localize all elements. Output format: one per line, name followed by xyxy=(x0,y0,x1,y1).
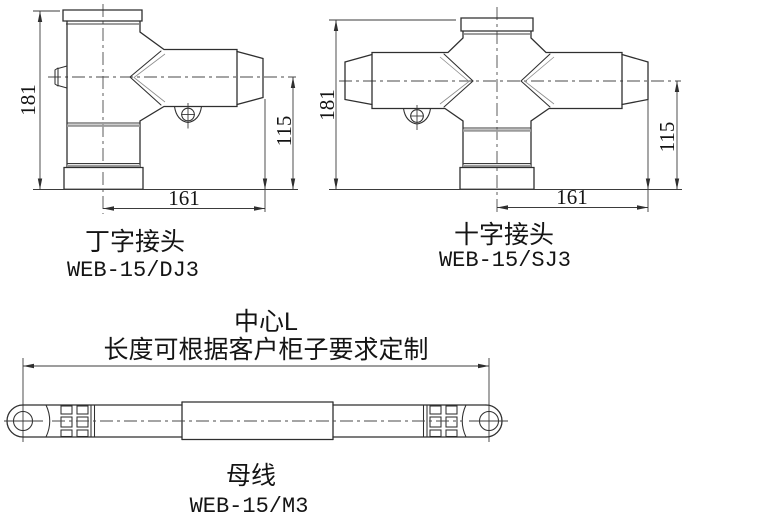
cross-joint-left-cone-silhouette xyxy=(444,54,473,107)
cross-joint-right-cone-silhouette xyxy=(521,54,550,107)
arrow-down-icon xyxy=(646,179,650,190)
grid-cell xyxy=(446,406,457,414)
cross-joint-outline xyxy=(345,18,648,189)
t-joint-dim-width-text: 161 xyxy=(168,186,200,210)
cross-joint-dim-width-text: 161 xyxy=(556,185,588,209)
grid-cell xyxy=(77,417,88,427)
busbar-left-arc-transition xyxy=(46,405,50,437)
cross-joint-dimensions: 181 115 161 xyxy=(315,20,682,212)
arrow-right-icon xyxy=(637,205,648,209)
grid-cell xyxy=(77,430,88,437)
cross-joint-left-branch-outline xyxy=(372,31,463,167)
arrow-down-icon xyxy=(38,179,42,190)
cross-joint-right-branch-outline xyxy=(531,31,622,167)
drawing-page: 181 115 161 丁字接头 WEB-15/DJ3 xyxy=(0,0,783,523)
arrow-down-icon xyxy=(263,179,267,190)
t-joint-centerlines xyxy=(48,4,296,214)
technical-drawing-canvas: 181 115 161 丁字接头 WEB-15/DJ3 xyxy=(0,0,783,523)
grid-cell xyxy=(430,417,441,427)
grid-cell xyxy=(446,417,457,427)
t-joint-outline xyxy=(55,10,263,189)
arrow-down-icon xyxy=(291,179,295,190)
cross-joint-right-end-cone xyxy=(622,55,648,105)
arrow-left-icon xyxy=(497,205,508,209)
t-joint-model: WEB-15/DJ3 xyxy=(67,258,199,283)
busbar-figure: 中心L 长度可根据客户柜子要求定制 xyxy=(4,308,508,519)
arrow-right-icon xyxy=(254,206,265,210)
cross-joint-left-end-cone xyxy=(345,55,372,105)
t-joint-base-section xyxy=(64,168,143,190)
cross-joint-figure: 181 115 161 十字接头 WEB-15/SJ3 xyxy=(315,7,682,273)
cross-joint-label: 十字接头 xyxy=(454,221,554,249)
arrow-down-icon xyxy=(675,179,679,190)
arrow-down-icon xyxy=(334,179,338,190)
t-joint-label: 丁字接头 xyxy=(85,228,185,256)
cross-joint-dim-branch-text: 115 xyxy=(655,122,679,153)
arrow-left-icon xyxy=(103,206,114,210)
busbar-bottom-edge xyxy=(23,437,486,440)
t-joint-branch-end-cone xyxy=(237,52,263,105)
grid-cell xyxy=(430,406,441,414)
arrow-left-icon xyxy=(23,364,34,368)
arrow-up-icon xyxy=(38,11,42,22)
busbar-dimensions xyxy=(23,358,489,442)
arrow-up-icon xyxy=(675,81,679,92)
cross-joint-model: WEB-15/SJ3 xyxy=(439,248,571,273)
busbar-length-note: 长度可根据客户柜子要求定制 xyxy=(103,336,428,364)
arrow-up-icon xyxy=(291,77,295,88)
t-joint-dimensions: 181 115 161 xyxy=(16,11,298,212)
grid-cell xyxy=(61,417,72,427)
busbar-outline xyxy=(4,402,508,440)
grid-cell xyxy=(430,430,441,437)
grid-cell xyxy=(61,430,72,437)
t-joint-top-cap xyxy=(63,10,142,21)
busbar-top-edge xyxy=(23,402,486,405)
grid-cell xyxy=(77,406,88,414)
t-joint-figure: 181 115 161 丁字接头 WEB-15/DJ3 xyxy=(16,4,298,283)
busbar-label: 母线 xyxy=(226,462,276,490)
arrow-right-icon xyxy=(478,364,489,368)
t-joint-dim-height-text: 181 xyxy=(16,84,40,116)
busbar-center-note: 中心L xyxy=(234,308,298,336)
arrow-up-icon xyxy=(334,20,338,31)
cross-joint-centerlines xyxy=(339,7,681,214)
cross-joint-dim-height-text: 181 xyxy=(315,89,339,121)
t-joint-dim-branch-text: 115 xyxy=(272,116,296,147)
grid-cell xyxy=(446,430,457,437)
busbar-model: WEB-15/M3 xyxy=(190,494,309,519)
grid-cell xyxy=(61,406,72,414)
busbar-right-arc-transition xyxy=(462,405,466,437)
